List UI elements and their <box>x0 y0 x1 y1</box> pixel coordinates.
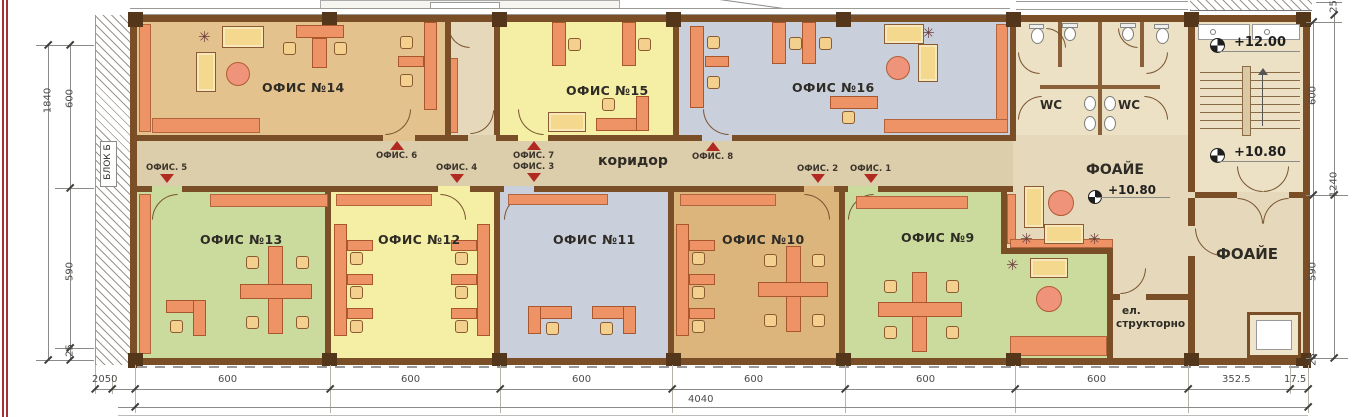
level-mark-line <box>1096 197 1170 198</box>
desk <box>312 38 327 68</box>
wc-label: WC <box>1118 98 1140 112</box>
room-label-office-10: ОФИС №10 <box>722 232 805 247</box>
dimension-line <box>118 415 1308 416</box>
credenza <box>884 119 1008 133</box>
door-direction-icon <box>160 174 174 183</box>
room-label-office-15: ОФИС №15 <box>566 83 649 98</box>
chair <box>546 322 559 335</box>
chair <box>707 76 720 89</box>
chair <box>884 280 897 293</box>
column <box>1006 12 1021 27</box>
chair <box>692 320 705 333</box>
door-gap <box>1188 226 1195 256</box>
wall <box>1188 256 1195 358</box>
dimension-line <box>95 389 1308 390</box>
plant-icon: ✳ <box>198 30 211 45</box>
floor-plan-canvas: ✳ ✳ <box>0 0 1358 417</box>
desk <box>758 282 828 297</box>
desk <box>676 224 689 336</box>
foyer-label: ФОАЙЕ <box>1086 162 1144 178</box>
chair <box>246 256 259 269</box>
chair <box>170 320 183 333</box>
desk <box>689 274 715 285</box>
wall <box>137 186 1013 192</box>
stair-direction-line <box>1262 74 1263 126</box>
sofa <box>222 26 264 48</box>
wall <box>1010 22 1016 135</box>
wall <box>673 22 679 135</box>
desk <box>636 96 649 131</box>
desk <box>477 224 490 336</box>
wall <box>1107 248 1113 358</box>
chair <box>884 326 897 339</box>
plant-icon: ✳ <box>922 26 935 41</box>
wall <box>668 192 674 358</box>
chair <box>455 320 468 333</box>
chair <box>946 280 959 293</box>
door-label: ОФИС. 2 <box>797 164 838 174</box>
desk <box>690 26 704 108</box>
chair <box>819 37 832 50</box>
column <box>666 12 681 27</box>
wall <box>1140 22 1144 67</box>
door-label: ОФИС. 3 <box>513 162 554 172</box>
wall <box>130 15 1310 22</box>
dim-value: 600 <box>744 374 763 385</box>
chair <box>455 252 468 265</box>
sink <box>1064 27 1076 41</box>
door-gap <box>438 186 470 192</box>
dim-value: 25 <box>1329 0 1340 22</box>
dim-value: 600 <box>218 374 237 385</box>
desk <box>347 308 373 319</box>
dim-value: 2050 <box>92 374 117 385</box>
toilet <box>1156 28 1169 44</box>
door-label: ОФИС. 5 <box>146 163 187 173</box>
chair <box>350 252 363 265</box>
chair <box>283 42 296 55</box>
wall <box>1001 192 1007 248</box>
desk <box>689 240 715 251</box>
balcony-fragment <box>1016 1 1188 10</box>
door-direction-icon <box>811 174 825 183</box>
desk <box>622 22 636 66</box>
room-label-office-14: ОФИС №14 <box>262 80 345 95</box>
column <box>1184 12 1199 27</box>
dim-value: 1840 <box>43 81 54 121</box>
chair <box>400 74 413 87</box>
chair <box>764 254 777 267</box>
chair <box>246 316 259 329</box>
chair <box>455 286 468 299</box>
room-label-office-9: ОФИС №9 <box>901 230 975 245</box>
plant-icon: ✳ <box>1006 258 1019 273</box>
wall-lining <box>139 24 151 132</box>
foyer-label: ФОАЙЕ <box>1216 245 1278 263</box>
dim-value: 17.5 <box>1284 374 1306 385</box>
column <box>836 12 851 27</box>
desk <box>451 308 477 319</box>
chair <box>334 42 347 55</box>
desk <box>334 224 347 336</box>
wc-label: WC <box>1040 98 1062 112</box>
wall <box>494 192 500 358</box>
chair <box>789 37 802 50</box>
level-mark-line <box>1218 51 1300 52</box>
round-table <box>226 62 250 86</box>
room-label-office-13: ОФИС №13 <box>200 232 283 247</box>
desk <box>398 56 424 67</box>
elevation-value: +10.80 <box>1234 145 1286 160</box>
desk <box>802 22 816 64</box>
sink <box>1084 96 1096 111</box>
wall <box>130 358 1310 365</box>
stair-direction-arrow <box>1258 68 1268 75</box>
elevation-value: +12.00 <box>1234 35 1286 50</box>
door-gap <box>848 186 878 192</box>
sofa <box>1024 186 1044 228</box>
wall <box>1113 294 1120 300</box>
credenza <box>508 194 608 205</box>
chair <box>812 254 825 267</box>
sink <box>1084 116 1096 131</box>
desk <box>689 308 715 319</box>
desk <box>296 25 344 38</box>
dim-value: 600 <box>572 374 591 385</box>
door-gap <box>1237 192 1289 198</box>
sofa <box>548 112 586 132</box>
wall <box>1102 85 1160 89</box>
wall <box>1146 294 1188 300</box>
door-label: ОФИС. 8 <box>692 152 733 162</box>
wall <box>445 22 451 135</box>
dim-value: 600 <box>1087 374 1106 385</box>
sink <box>1210 29 1216 35</box>
desk <box>830 96 878 109</box>
sofa <box>196 52 216 92</box>
chair <box>842 111 855 124</box>
desk <box>552 22 566 66</box>
credenza <box>152 118 260 133</box>
chair <box>812 314 825 327</box>
desk <box>240 284 312 299</box>
sink <box>1104 96 1116 111</box>
dim-value: 1240 <box>1329 165 1340 205</box>
desk <box>347 240 373 251</box>
door-direction-icon <box>706 142 720 151</box>
sink <box>1104 116 1116 131</box>
credenza <box>336 194 432 206</box>
desk <box>424 22 437 110</box>
wall-lining <box>996 24 1008 120</box>
room-label-office-12: ОФИС №12 <box>378 232 461 247</box>
desk <box>772 22 786 64</box>
roof-hatch-fragment <box>1190 0 1312 11</box>
room-label-office-11: ОФИС №11 <box>553 232 636 247</box>
dim-value: 600 <box>65 79 76 119</box>
sofa <box>918 44 938 82</box>
desk <box>347 274 373 285</box>
wall-lining <box>1010 336 1107 356</box>
chair <box>400 36 413 49</box>
door-gap <box>1120 294 1146 300</box>
dim-value: 590 <box>65 252 76 292</box>
desk <box>193 300 206 336</box>
chair <box>946 326 959 339</box>
credenza <box>856 196 968 209</box>
block-label: БЛОК Б <box>103 139 113 185</box>
dim-value: 25 <box>65 336 76 366</box>
round-table <box>1048 190 1074 216</box>
wall <box>130 15 137 365</box>
toilet <box>1031 28 1044 44</box>
column <box>128 12 143 27</box>
dim-value: 600 <box>401 374 420 385</box>
wall <box>1098 22 1102 135</box>
door-gap <box>804 186 834 192</box>
dimension-line <box>118 407 1308 408</box>
wall <box>325 192 331 358</box>
dim-guide <box>55 188 94 189</box>
wall-lining <box>139 194 151 354</box>
door-direction-icon <box>864 174 878 183</box>
dim-value: 352.5 <box>1222 374 1251 385</box>
chair <box>707 36 720 49</box>
adjacent-block-hatch <box>95 15 130 365</box>
sofa <box>1030 258 1068 278</box>
chair <box>692 252 705 265</box>
dimension-line <box>1313 22 1314 358</box>
level-mark-line <box>1218 161 1300 162</box>
door-label: ОФИС. 1 <box>850 164 891 174</box>
door-direction-icon <box>390 141 404 150</box>
chair <box>350 286 363 299</box>
dim-total: 4040 <box>688 394 713 405</box>
desk <box>705 56 729 67</box>
credenza <box>210 194 328 207</box>
credenza <box>680 194 776 206</box>
dim-value: 25 <box>1308 345 1319 375</box>
sofa <box>884 24 924 44</box>
wall <box>494 22 500 135</box>
wall <box>1001 248 1113 254</box>
wall-lining <box>1007 194 1016 244</box>
facade-glazing <box>130 8 1010 15</box>
el-room-label: структорно <box>1116 318 1185 330</box>
door-direction-icon <box>527 141 541 150</box>
chair <box>568 38 581 51</box>
desk <box>528 306 541 334</box>
elevation-value: +10.80 <box>1108 183 1156 197</box>
dim-value: 590 <box>1308 252 1319 292</box>
wall <box>1195 192 1237 198</box>
desk <box>451 274 477 285</box>
sink <box>1122 27 1134 41</box>
wall <box>1303 15 1310 365</box>
page-border-line <box>2 0 4 417</box>
chair <box>692 286 705 299</box>
column <box>492 12 507 27</box>
round-table <box>1036 286 1062 312</box>
page-border-line <box>6 0 8 417</box>
chair <box>296 316 309 329</box>
elevator-car <box>1256 320 1292 350</box>
corridor-label: коридор <box>598 153 668 169</box>
wall <box>1188 198 1195 226</box>
chair <box>296 256 309 269</box>
round-table <box>886 56 910 80</box>
wall <box>839 192 845 358</box>
plant-icon: ✳ <box>1020 232 1033 247</box>
el-room-label: ел. <box>1122 305 1141 317</box>
door-label: ОФИС. 6 <box>376 151 417 161</box>
wall <box>1040 85 1098 89</box>
sofa <box>1044 224 1084 244</box>
door-gap <box>152 186 182 192</box>
dim-value: 600 <box>1308 76 1319 116</box>
dim-value: 600 <box>916 374 935 385</box>
facade-glazing <box>137 366 1303 368</box>
desk <box>623 306 636 334</box>
chair <box>638 38 651 51</box>
door-gap <box>702 135 732 141</box>
door-gap <box>468 135 496 141</box>
chair <box>764 314 777 327</box>
stair-stringer <box>1242 66 1251 136</box>
door-label: ОФИС. 7 <box>513 151 554 161</box>
door-gap <box>504 186 534 192</box>
chair <box>602 98 615 111</box>
room-label-office-16: ОФИС №16 <box>792 80 875 95</box>
plant-icon: ✳ <box>1088 232 1101 247</box>
door-direction-icon <box>527 173 541 182</box>
chair <box>600 322 613 335</box>
door-direction-icon <box>450 174 464 183</box>
door-label: ОФИС. 4 <box>436 163 477 173</box>
wall <box>1289 192 1303 198</box>
desk <box>878 302 962 317</box>
chair <box>350 320 363 333</box>
wall <box>137 135 1016 141</box>
wall <box>1188 15 1195 192</box>
